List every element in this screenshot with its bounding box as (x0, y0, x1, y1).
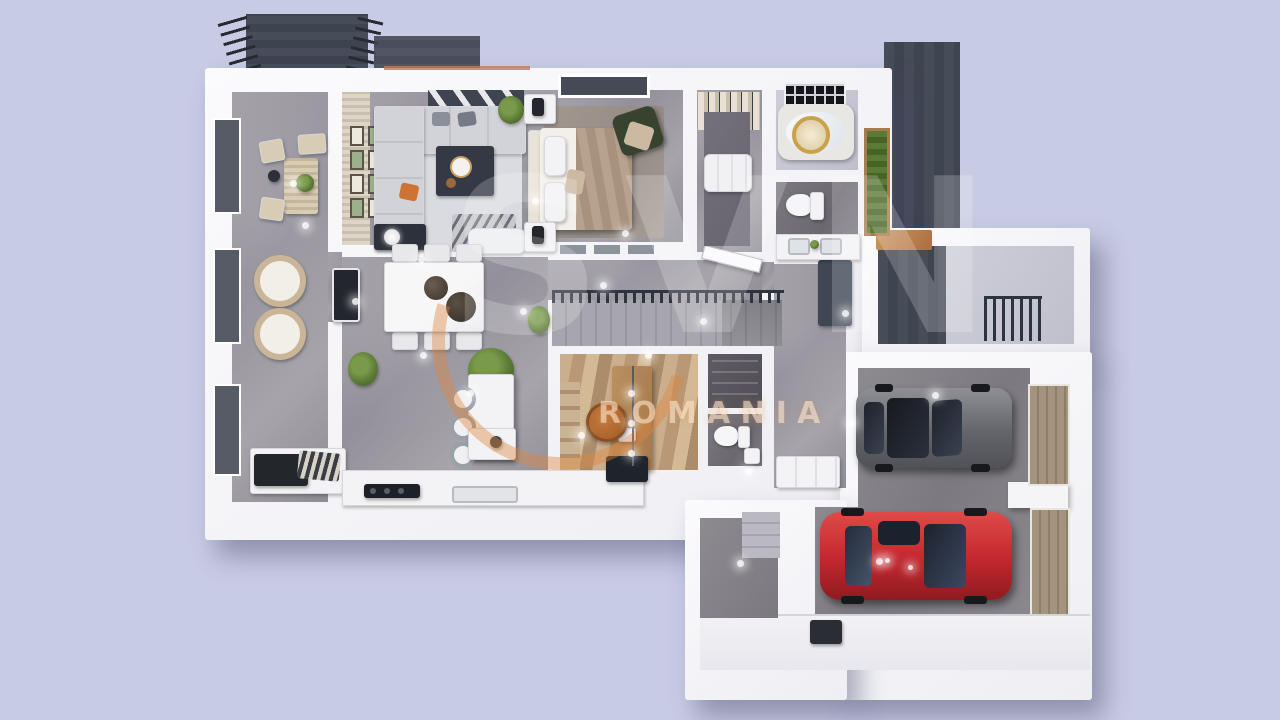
light-sparkle (600, 282, 607, 289)
dining-chair (456, 332, 482, 350)
powder-toilet-tank (738, 426, 750, 448)
light-sparkle (700, 318, 707, 325)
light-sparkle (932, 392, 939, 399)
light-sparkle (737, 560, 744, 567)
coffee-table-bowl (446, 178, 456, 188)
window-glass (213, 118, 241, 214)
hood-glint (908, 565, 913, 570)
light-sparkle (848, 420, 855, 427)
office-file-cabinet (606, 456, 648, 482)
light-sparkle (578, 432, 585, 439)
vertical-garden (864, 128, 890, 236)
dining-chair (424, 244, 450, 262)
car-wheel-icon (875, 464, 894, 472)
pendant-bulb (628, 450, 635, 457)
car-rear-window-icon (845, 526, 872, 586)
light-sparkle (290, 180, 297, 187)
cooktop-burner (370, 488, 376, 494)
powder-toilet (714, 426, 738, 446)
vanity-sink (820, 238, 842, 255)
terrace-railing-icon (984, 296, 1042, 341)
picture-frame (350, 198, 364, 218)
office-shelving (560, 382, 580, 470)
window-glass (213, 384, 241, 476)
wc-toilet-tank (810, 192, 824, 220)
potted-plant (498, 96, 524, 124)
doormat (810, 620, 842, 644)
hall-door-opening (762, 262, 774, 292)
garage-door-upper (1028, 384, 1070, 486)
bedroom-window (558, 74, 650, 98)
sliding-door-vent (560, 245, 586, 254)
light-sparkle (876, 558, 883, 565)
car-windshield-icon (932, 399, 962, 457)
bistro-chair (258, 138, 285, 164)
sliding-door-vent (628, 245, 654, 254)
car-wheel-icon (875, 384, 894, 392)
window-glass (213, 248, 241, 344)
vanity-sink (788, 238, 810, 255)
car-wheel-icon (971, 384, 990, 392)
pendant-bulb (628, 420, 635, 427)
car-wheel-icon (964, 508, 987, 516)
light-sparkle (532, 198, 539, 205)
closet-ottoman (704, 154, 752, 192)
car-gray (856, 388, 1012, 468)
light-sparkle (420, 352, 427, 359)
terrace-decking (878, 246, 946, 344)
bistro-chair (259, 196, 286, 221)
wicker-armchair (254, 255, 306, 307)
garage-apron-floor (700, 614, 1090, 670)
roof-edge-accent (384, 66, 530, 70)
car-rear-window-icon (864, 402, 884, 453)
cooktop-burner (398, 488, 404, 494)
floor-lamp (384, 229, 400, 245)
nightstand-lamp (532, 226, 544, 244)
light-sparkle (745, 468, 752, 475)
potted-plant (348, 352, 378, 386)
car-wheel-icon (841, 596, 864, 604)
light-sparkle (645, 352, 652, 359)
sliding-door-vent (594, 245, 620, 254)
dining-chair (392, 244, 418, 262)
hood-glint (885, 558, 890, 563)
pendant-light (446, 292, 476, 322)
floorplan-3d-render: SVN ROMANIA (0, 0, 1280, 720)
striped-pillow (297, 450, 341, 482)
dining-chair (456, 244, 482, 262)
shoe-cabinet (776, 456, 840, 488)
nightstand-lamp (532, 98, 544, 116)
entrance-steps (742, 512, 780, 558)
leaning-art-frame (332, 268, 360, 322)
light-sparkle (418, 256, 425, 263)
bed-pillow (544, 136, 566, 176)
light-sparkle (842, 310, 849, 317)
light-sparkle (622, 230, 629, 237)
stair-handrail-icon (552, 290, 784, 303)
picture-frame (350, 174, 364, 194)
bistro-chair (297, 133, 326, 155)
wicker-armchair (254, 308, 306, 360)
car-wheel-icon (971, 464, 990, 472)
dining-chair (392, 332, 418, 350)
picture-frame (350, 150, 364, 170)
table-vase (268, 170, 280, 182)
stair-winder-shading (722, 300, 782, 346)
light-sparkle (467, 390, 474, 397)
car-windshield-icon (924, 524, 966, 587)
potted-plant (296, 174, 314, 192)
car-wheel-icon (841, 508, 864, 516)
pendant-light (424, 276, 448, 300)
car-roof-icon (887, 398, 929, 459)
light-sparkle (302, 222, 309, 229)
light-sparkle (352, 298, 359, 305)
car-wheel-icon (964, 596, 987, 604)
picture-frame (350, 126, 364, 146)
wc-toilet (786, 194, 812, 216)
coffee-table-tray (452, 158, 470, 176)
kettle (490, 436, 502, 448)
powder-sink (744, 448, 760, 464)
car-sunroof-icon (878, 521, 920, 546)
kitchen-sink (452, 486, 518, 503)
throw-pillow-gray (432, 112, 450, 126)
cooktop-burner (384, 488, 390, 494)
throw-pillow-gray (457, 111, 477, 127)
dining-chair (424, 332, 450, 350)
light-sparkle (520, 308, 527, 315)
storage-shelves (712, 360, 758, 404)
potted-plant (528, 306, 550, 334)
office-chair (586, 402, 628, 442)
roof-slab (884, 42, 960, 250)
round-gold-mirror (792, 116, 830, 154)
pendant-bulb (628, 390, 635, 397)
car-red (820, 512, 1012, 600)
throw-pillow-orange (399, 182, 420, 201)
bed-pillow (544, 182, 566, 222)
vanity-plant (810, 240, 819, 249)
